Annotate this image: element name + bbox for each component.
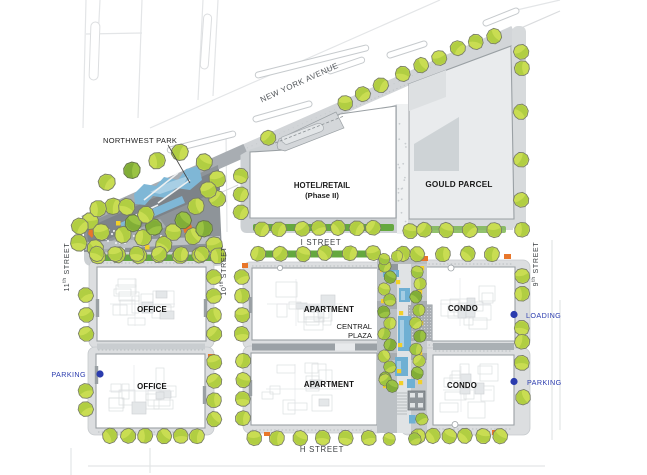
svg-text:CONDO: CONDO (447, 381, 477, 390)
svg-text:PARKING: PARKING (527, 378, 562, 387)
svg-text:NORTHWEST PARK: NORTHWEST PARK (103, 136, 177, 145)
svg-text:OFFICE: OFFICE (137, 382, 167, 391)
svg-text:I STREET: I STREET (301, 238, 342, 247)
svg-text:PARKING: PARKING (51, 370, 86, 379)
svg-text:LOADING: LOADING (526, 311, 561, 320)
svg-text:H STREET: H STREET (300, 445, 344, 454)
svg-text:10th STREET: 10th STREET (219, 246, 228, 295)
svg-text:11th STREET: 11th STREET (62, 243, 71, 292)
svg-text:(Phase II): (Phase II) (305, 191, 339, 200)
svg-text:GOULD PARCEL: GOULD PARCEL (425, 180, 492, 189)
svg-text:APARTMENT: APARTMENT (304, 380, 354, 389)
svg-text:CONDO: CONDO (448, 304, 478, 313)
svg-text:CENTRAL: CENTRAL (337, 322, 372, 331)
svg-text:HOTEL/RETAIL: HOTEL/RETAIL (294, 181, 350, 190)
svg-text:PLAZA: PLAZA (348, 331, 373, 340)
svg-text:OFFICE: OFFICE (137, 305, 167, 314)
svg-text:APARTMENT: APARTMENT (304, 305, 354, 314)
